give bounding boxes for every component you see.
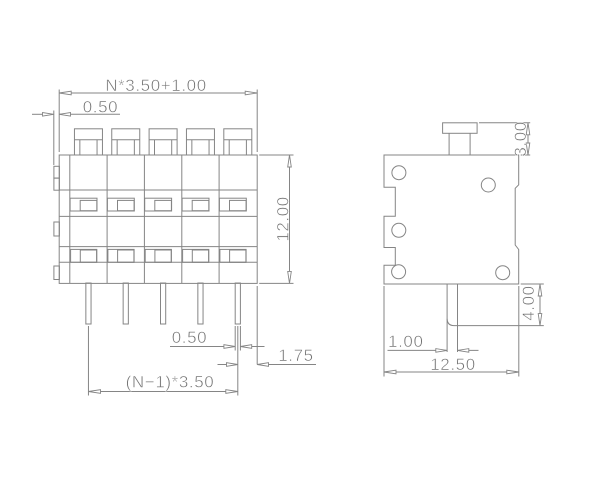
svg-text:12.50: 12.50 [430,355,476,374]
svg-text:3.00: 3.00 [511,121,530,157]
svg-text:N*3.50+1.00: N*3.50+1.00 [105,76,207,95]
svg-text:1.75: 1.75 [278,346,314,365]
svg-text:(N−1)*3.50: (N−1)*3.50 [126,373,215,392]
svg-text:4.00: 4.00 [519,285,538,321]
svg-text:1.00: 1.00 [388,332,424,351]
svg-text:0.50: 0.50 [172,328,208,347]
svg-text:12.00: 12.00 [274,196,293,242]
svg-text:0.50: 0.50 [83,97,119,116]
